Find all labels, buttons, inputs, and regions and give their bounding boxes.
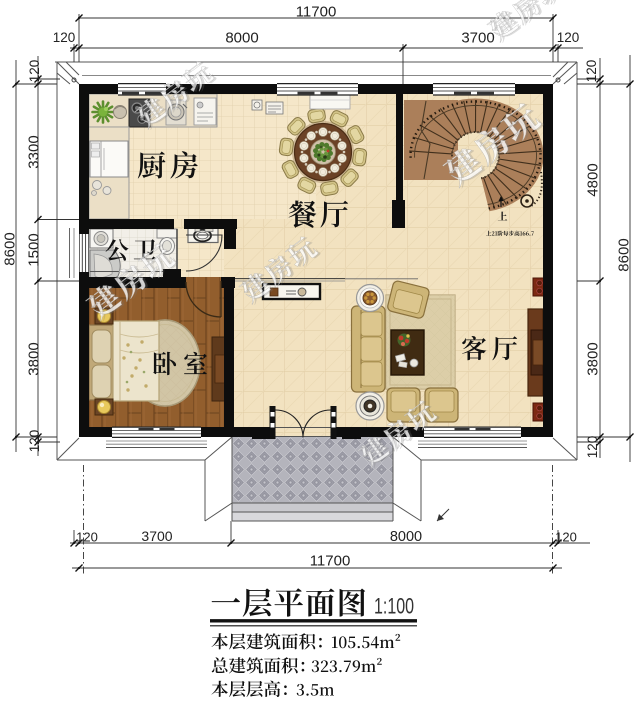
svg-text:8000: 8000 (390, 529, 422, 545)
svg-text:120: 120 (584, 60, 599, 83)
svg-text:11700: 11700 (310, 552, 351, 569)
svg-text:120: 120 (76, 530, 98, 545)
svg-text:1:100: 1:100 (374, 594, 414, 619)
svg-text:11700: 11700 (296, 3, 337, 20)
svg-text:120: 120 (555, 530, 577, 545)
svg-text:120: 120 (27, 430, 42, 453)
svg-text:4800: 4800 (584, 163, 601, 196)
svg-text:120: 120 (27, 60, 42, 83)
svg-text:8600: 8600 (1, 232, 18, 265)
svg-text:120: 120 (53, 30, 76, 45)
svg-text:120: 120 (557, 30, 580, 45)
svg-text:3800: 3800 (25, 342, 42, 375)
svg-text:8600: 8600 (615, 238, 632, 271)
svg-text:3700: 3700 (141, 528, 172, 544)
svg-text:3300: 3300 (25, 135, 42, 168)
svg-text:3800: 3800 (584, 342, 601, 375)
svg-text:1500: 1500 (25, 233, 42, 266)
svg-text:3700: 3700 (461, 29, 494, 46)
svg-text:120: 120 (585, 436, 600, 459)
svg-text:8000: 8000 (225, 29, 258, 46)
